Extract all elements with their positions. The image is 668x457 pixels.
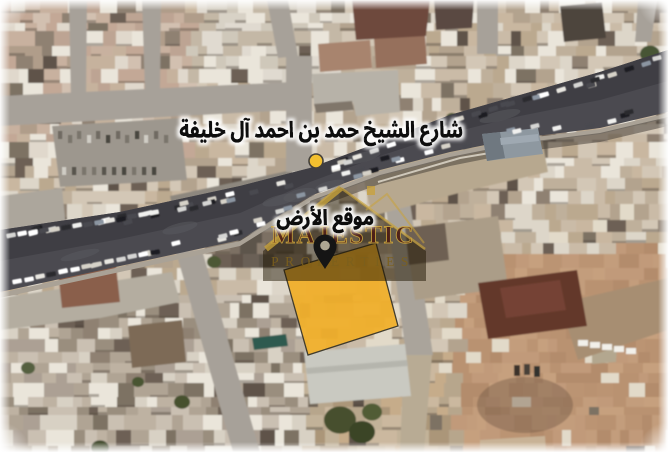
- svg-text:PROPERTIES: PROPERTIES: [271, 254, 415, 269]
